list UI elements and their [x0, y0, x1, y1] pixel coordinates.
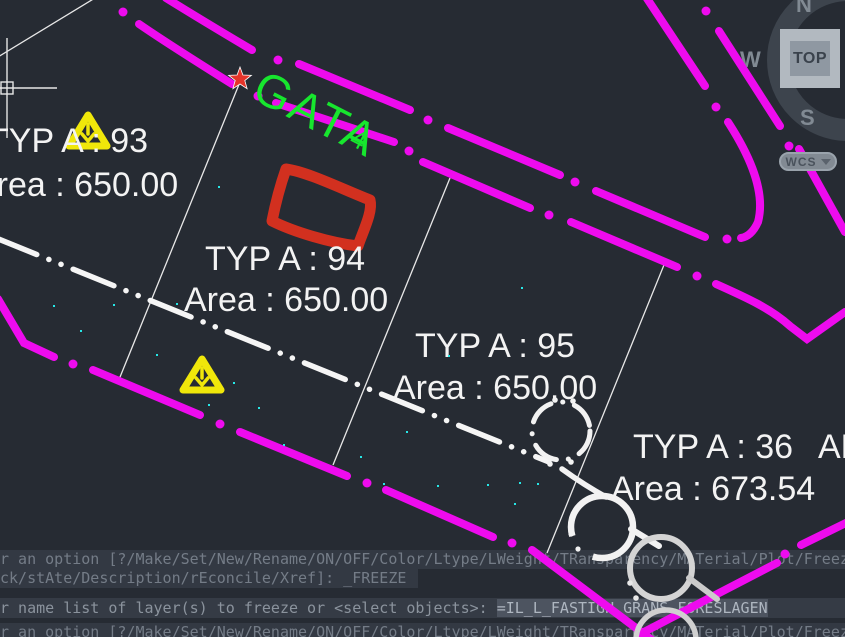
road-upper-edge-segment[interactable] [299, 64, 410, 110]
road-dash-dot[interactable] [723, 235, 732, 244]
boundary-line-topleft[interactable] [0, 0, 95, 57]
road-dash-dot[interactable] [274, 56, 283, 65]
viewcube-west-label[interactable]: W [740, 47, 761, 73]
plot-boundary-94-95[interactable] [333, 178, 450, 465]
road-dash-dot[interactable] [545, 211, 554, 220]
road-dash-dot[interactable] [119, 8, 128, 17]
road-dash-dot[interactable] [363, 479, 372, 488]
circle-dot [547, 461, 553, 467]
point-specks [53, 186, 539, 505]
road-dash-dot[interactable] [785, 142, 794, 151]
plot-36-area-label[interactable]: Area : 673.54 [611, 470, 815, 508]
street-name-subscript[interactable]: 4 [345, 123, 372, 156]
road-dash-dot[interactable] [508, 539, 517, 548]
road-gata-upper-edge[interactable] [166, 0, 252, 50]
crosshair-pickbox [1, 82, 13, 94]
viewcube-south-label[interactable]: S [800, 105, 815, 131]
road-upper-edge-segment[interactable] [596, 191, 705, 237]
viewcube-ring-layer [0, 0, 845, 637]
road-sw-edge-segment[interactable] [0, 299, 54, 357]
command-line-3: r name list of layer(s) to freeze or <se… [0, 598, 845, 618]
road-ne-right-edge[interactable] [719, 31, 780, 126]
road-intersection-corner[interactable] [716, 284, 845, 339]
plot-36-type-label[interactable]: TYP A : 36 [633, 428, 793, 466]
plot-93-area-label[interactable]: Area : 650.00 [0, 166, 178, 204]
road-sw-edge-segment[interactable] [93, 370, 200, 415]
road-dash-dot[interactable] [712, 103, 721, 112]
plot-boundary-95-36[interactable] [547, 260, 666, 553]
road-dash-dot[interactable] [405, 147, 414, 156]
viewcube-top-face[interactable]: TOP [780, 29, 840, 88]
red-markup-rectangle[interactable] [272, 169, 371, 246]
plot-94-type-label[interactable]: TYP A : 94 [205, 240, 365, 278]
circle-dot [552, 397, 558, 403]
circle-dot [627, 580, 633, 586]
road-upper-edge-segment[interactable] [448, 128, 560, 175]
road-se-edge-segment[interactable] [801, 522, 845, 545]
command-line-3-highlight: =IL_L_FASTIGH_GRANS_FORESLAGEN [497, 599, 768, 617]
cad-viewport[interactable]: r an option [?/Make/Set/New/Rename/ON/OF… [0, 0, 845, 637]
tangent-line[interactable] [689, 578, 717, 599]
viewcube-top-label: TOP [790, 41, 830, 76]
command-line-4: r an option [?/Make/Set/New/Rename/ON/OF… [0, 623, 845, 637]
circle-dot [568, 459, 574, 465]
viewcube-north-label[interactable]: N [796, 0, 812, 18]
road-lower-edge-segment[interactable] [571, 222, 677, 267]
road-dash-dot[interactable] [702, 7, 711, 16]
command-line-3-prefix: r name list of layer(s) to freeze or <se… [0, 599, 497, 617]
plot-93-type-label[interactable]: TYP A : 93 [0, 122, 148, 160]
command-line-2: ck/stAte/Description/rEconcile/Xref]: _F… [0, 569, 418, 588]
command-line-1: r an option [?/Make/Set/New/Rename/ON/OF… [0, 550, 845, 569]
road-dash-dot[interactable] [216, 420, 225, 429]
circle-dot [568, 531, 573, 536]
road-sw-edge-segment[interactable] [386, 490, 493, 537]
plot-95-type-label[interactable]: TYP A : 95 [415, 327, 575, 365]
plot-boundary-93-94[interactable] [118, 82, 240, 382]
road-dash-dot[interactable] [424, 116, 433, 125]
plot-95-area-label[interactable]: Area : 650.00 [393, 369, 597, 407]
road-intersection-fillet[interactable] [728, 122, 760, 238]
drawing-layer: GATA 4 TYP A : 93 Area : 650.00 TYP A : … [0, 0, 845, 637]
edge-clipped-label[interactable]: AR [818, 428, 845, 466]
road-dash-dot[interactable] [571, 178, 580, 187]
road-lower-edge-segment[interactable] [423, 162, 530, 208]
wcs-dropdown[interactable]: WCS [779, 152, 837, 171]
crosshair-cursor [0, 38, 57, 138]
road-centerline[interactable] [0, 238, 549, 462]
wcs-label: WCS [786, 155, 817, 169]
turning-circle-dashed[interactable] [532, 402, 590, 460]
road-sw-edge-segment[interactable] [240, 432, 347, 476]
warning-icon[interactable] [69, 115, 107, 146]
road-lower-edge-segment[interactable] [276, 103, 394, 142]
road-ne-left-edge[interactable] [646, 0, 705, 86]
road-dash-dot[interactable] [254, 92, 263, 101]
star-marker[interactable] [229, 67, 252, 89]
plot-94-area-label[interactable]: Area : 650.00 [184, 281, 388, 319]
circle-dot [570, 398, 576, 404]
warning-icon[interactable] [183, 359, 221, 390]
tangent-line[interactable] [562, 469, 606, 497]
street-name-label[interactable]: GATA [245, 60, 388, 168]
road-gata-lower-edge[interactable] [139, 24, 232, 84]
chevron-down-icon [821, 159, 831, 165]
road-dash-dot[interactable] [693, 272, 702, 281]
circle-solid-1[interactable] [571, 496, 633, 558]
tangent-line[interactable] [631, 529, 659, 546]
road-dash-dot[interactable] [69, 360, 78, 369]
